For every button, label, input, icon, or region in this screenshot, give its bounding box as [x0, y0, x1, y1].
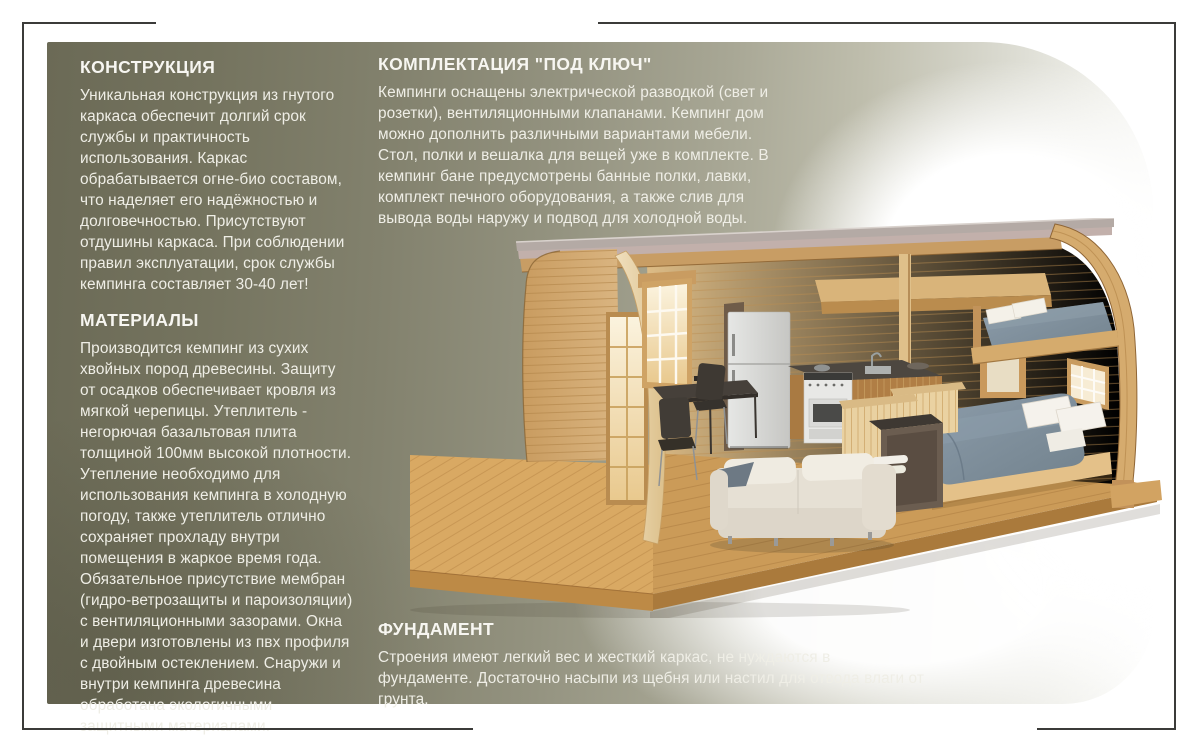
section-construction: КОНСТРУКЦИЯ Уникальная конструкция из гн… [80, 57, 354, 295]
frame-line-top-left [23, 22, 156, 24]
section-foundation: ФУНДАМЕНТ Строения имеют легкий вес и же… [378, 619, 926, 710]
section-equipment: КОМПЛЕКТАЦИЯ "ПОД КЛЮЧ" Кемпинги оснащен… [378, 54, 782, 229]
left-column: КОНСТРУКЦИЯ Уникальная конструкция из гн… [80, 57, 354, 737]
frame-line-left [22, 22, 24, 730]
sofa [710, 453, 896, 553]
section-materials: МАТЕРИАЛЫ Производится кемпинг из сухих … [80, 310, 354, 737]
equipment-title: КОМПЛЕКТАЦИЯ "ПОД КЛЮЧ" [378, 54, 782, 75]
gable-wall [523, 249, 620, 462]
frame-line-bottom-left [23, 728, 473, 730]
entrance-door [606, 312, 648, 505]
bowl [907, 363, 929, 370]
frame-line-right [1174, 22, 1176, 730]
foundation-title: ФУНДАМЕНТ [378, 619, 926, 640]
pot [814, 365, 830, 372]
left-window [638, 270, 696, 390]
frame-line-top-right [598, 22, 1176, 24]
frame-line-bottom-right [1037, 728, 1176, 730]
house-illustration [410, 218, 1165, 618]
foundation-body: Строения имеют легкий вес и жесткий карк… [378, 647, 926, 710]
materials-body: Производится кемпинг из сухих хвойных по… [80, 338, 354, 737]
construction-title: КОНСТРУКЦИЯ [80, 57, 354, 78]
equipment-body: Кемпинги оснащены электрической разводко… [378, 82, 782, 229]
construction-body: Уникальная конструкция из гнутого каркас… [80, 85, 354, 295]
brochure-page: КОНСТРУКЦИЯ Уникальная конструкция из гн… [0, 0, 1200, 750]
fridge [728, 312, 790, 449]
materials-title: МАТЕРИАЛЫ [80, 310, 354, 331]
sink [865, 366, 891, 374]
